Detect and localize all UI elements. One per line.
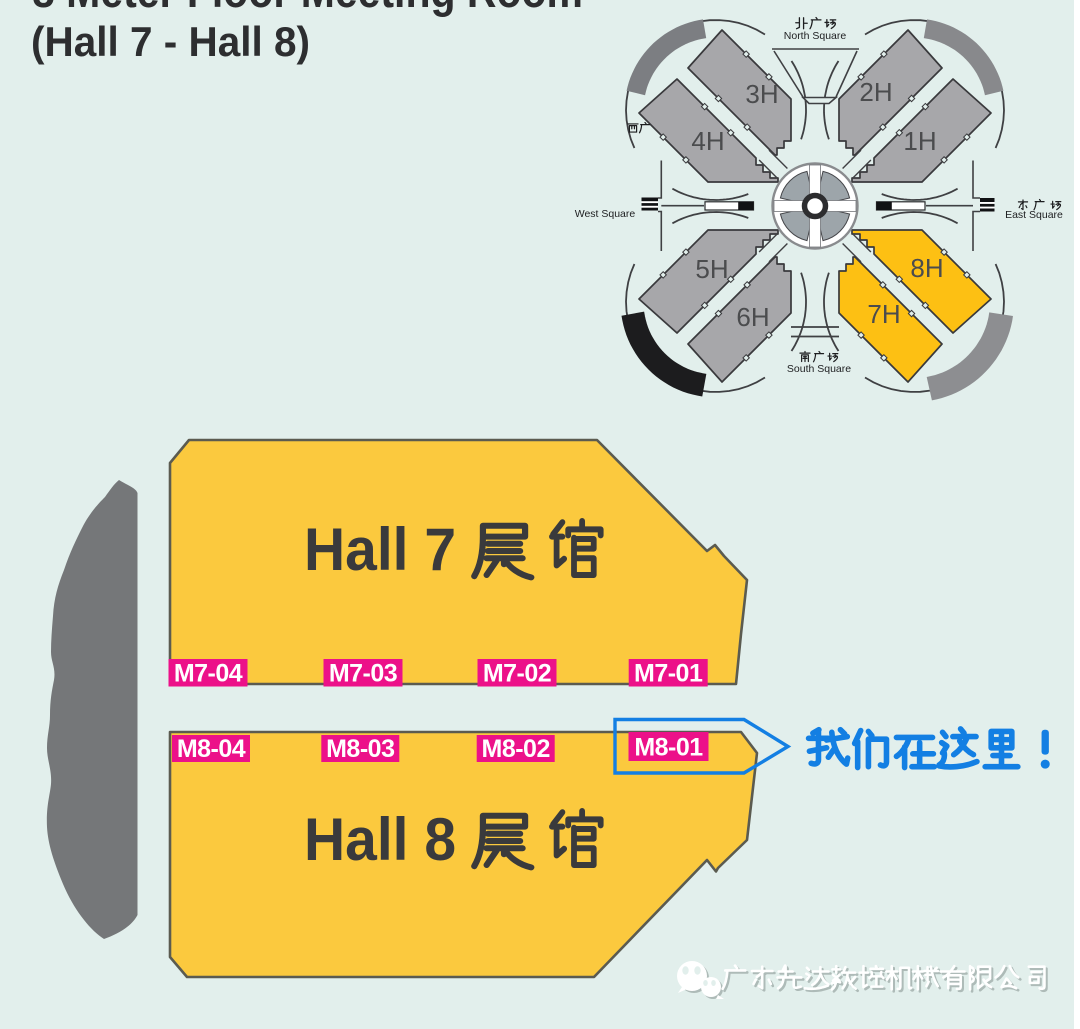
svg-text:Hall 7: Hall 7 xyxy=(304,516,456,583)
svg-text:(Hall 7 - Hall 8): (Hall 7 - Hall 8) xyxy=(31,18,310,65)
svg-text:South Square: South Square xyxy=(787,363,851,375)
svg-text:8H: 8H xyxy=(910,253,943,283)
svg-text:North Square: North Square xyxy=(784,30,847,42)
svg-text:West Square: West Square xyxy=(575,208,636,220)
svg-text:M8-01: M8-01 xyxy=(634,734,703,762)
svg-text:M8-03: M8-03 xyxy=(326,735,394,763)
svg-text:M8-02: M8-02 xyxy=(482,735,550,763)
svg-text:M7-02: M7-02 xyxy=(483,660,551,688)
svg-text:6H: 6H xyxy=(736,302,769,332)
svg-text:M8-04: M8-04 xyxy=(177,735,246,763)
svg-text:M7-03: M7-03 xyxy=(329,660,397,688)
svg-text:East Square: East Square xyxy=(1005,209,1063,221)
svg-text:8 Meter Floor Meeting Room: 8 Meter Floor Meeting Room xyxy=(32,0,583,17)
svg-text:3H: 3H xyxy=(745,79,778,109)
svg-text:4H: 4H xyxy=(691,126,724,156)
svg-text:2H: 2H xyxy=(859,77,892,107)
svg-text:M7-01: M7-01 xyxy=(634,660,703,688)
svg-text:7H: 7H xyxy=(867,299,900,329)
svg-text:5H: 5H xyxy=(695,254,728,284)
svg-text:Hall 8: Hall 8 xyxy=(304,806,456,873)
svg-text:1H: 1H xyxy=(903,126,936,156)
svg-text:M7-04: M7-04 xyxy=(174,660,243,688)
